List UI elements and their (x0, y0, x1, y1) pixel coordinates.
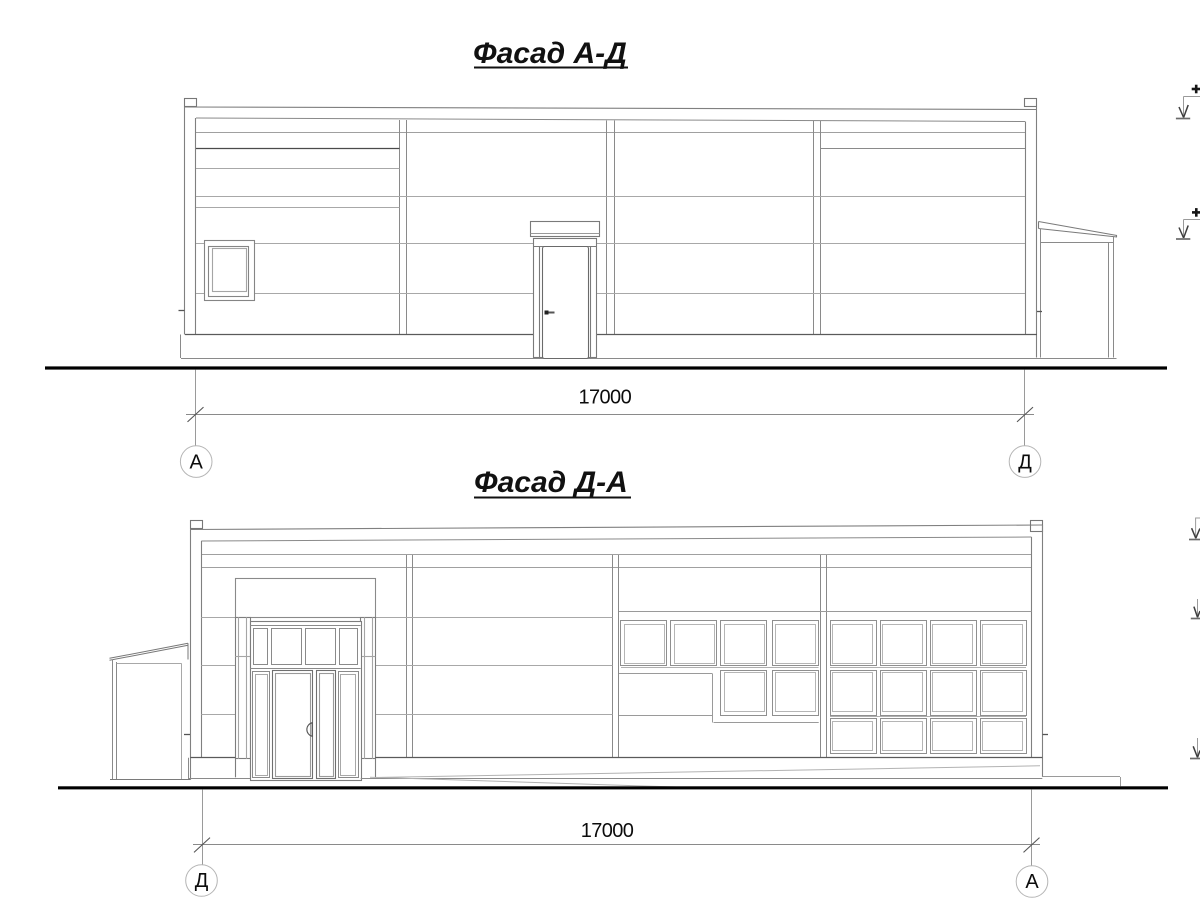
svg-text:17000: 17000 (578, 386, 631, 408)
svg-text:А: А (190, 451, 204, 473)
svg-text:Д: Д (195, 870, 209, 892)
svg-text:Фасад Д-А: Фасад Д-А (474, 466, 628, 499)
svg-text:Д: Д (1018, 451, 1032, 473)
svg-text:А: А (1025, 871, 1039, 893)
svg-text:17000: 17000 (581, 820, 634, 842)
svg-text:Фасад А-Д: Фасад А-Д (473, 37, 627, 70)
